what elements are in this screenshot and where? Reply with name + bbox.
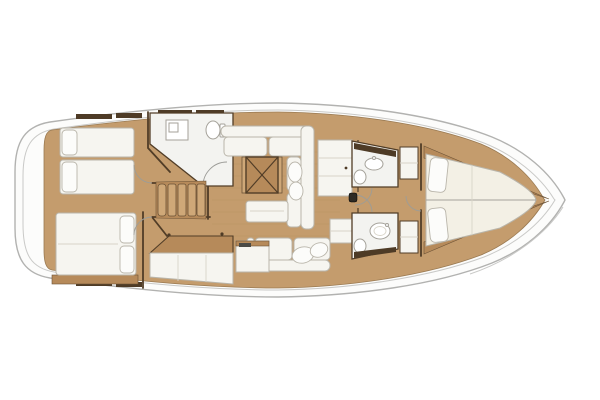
yacht-plan-drawing [0, 0, 600, 400]
toilet [354, 170, 366, 184]
sofa-cushion [224, 137, 267, 156]
shower-head [169, 123, 178, 132]
saloon-table [242, 157, 282, 193]
aft-cabin-port [60, 128, 134, 194]
sofa-back-right [301, 126, 314, 229]
pillow [427, 157, 448, 193]
mast [349, 193, 357, 202]
floor-plan [0, 0, 600, 400]
aft-cabin-starboard [52, 213, 138, 284]
tall-cabinet [318, 140, 352, 196]
toilet [206, 121, 220, 139]
galley-stove [239, 243, 251, 247]
pillow [120, 216, 134, 243]
sofa-back-top [221, 126, 313, 137]
pillow [427, 207, 448, 243]
pillow [120, 246, 134, 273]
sofa-pillow [288, 162, 302, 182]
bed-platform-edge [52, 275, 138, 284]
nav-cabinet [330, 219, 352, 243]
sofa-pillow [289, 182, 303, 200]
pillow [62, 162, 77, 192]
saloon-ottoman [246, 201, 288, 222]
pillow [62, 130, 77, 155]
